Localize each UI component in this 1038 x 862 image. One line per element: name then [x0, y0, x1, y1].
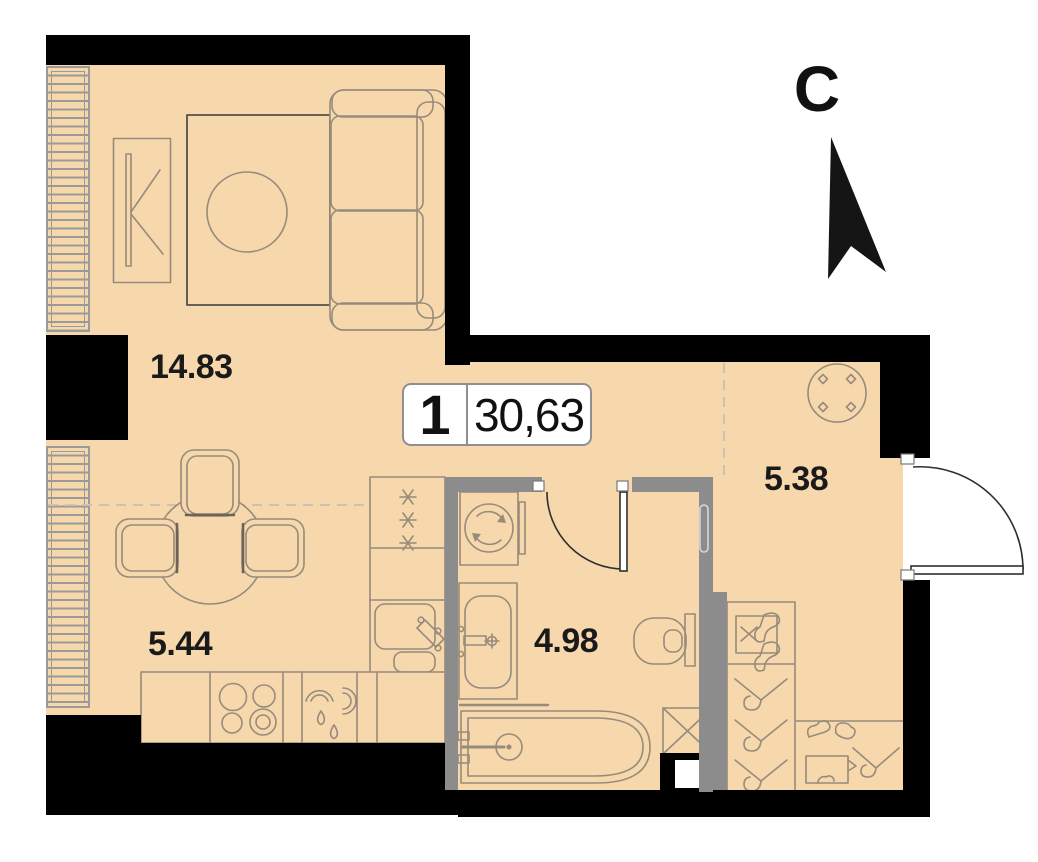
door-jamb — [617, 481, 628, 491]
bathroom-door — [547, 492, 627, 571]
room-area-bathroom: 4.98 — [534, 622, 598, 661]
door-jamb — [901, 454, 914, 464]
north-arrow-icon — [828, 137, 886, 279]
unit-info-badge: 1 30,63 — [402, 383, 592, 446]
room-area-kitchen: 5.44 — [148, 625, 212, 664]
unit-total-area: 30,63 — [468, 385, 590, 444]
north-label: С — [782, 52, 852, 126]
door-jamb — [533, 481, 544, 491]
unit-number: 1 — [404, 385, 468, 444]
door-jamb — [901, 570, 914, 580]
room-area-hallway: 5.38 — [764, 460, 828, 499]
room-area-living: 14.83 — [150, 348, 233, 387]
entrance-door — [911, 467, 1023, 574]
floor-plan: С 14.83 5.44 4.98 5.38 1 30,63 — [0, 0, 1038, 862]
towel-radiator-icon — [700, 505, 708, 552]
